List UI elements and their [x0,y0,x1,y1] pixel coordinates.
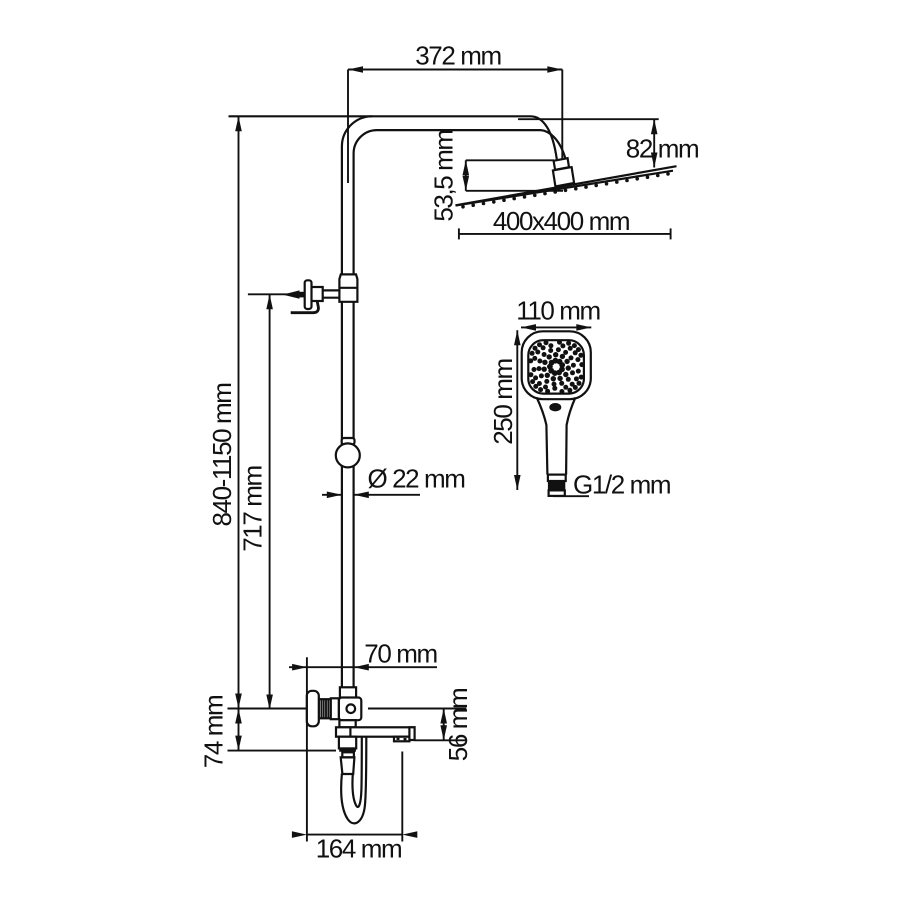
svg-text:250 mm: 250 mm [488,359,518,445]
svg-text:372 mm: 372 mm [415,41,501,71]
svg-text:70 mm: 70 mm [364,639,436,669]
svg-text:400x400 mm: 400x400 mm [493,206,629,236]
svg-text:840-1150 mm: 840-1150 mm [207,383,237,526]
svg-text:56 mm: 56 mm [443,689,473,761]
svg-text:G1/2 mm: G1/2 mm [573,469,670,499]
svg-text:82 mm: 82 mm [626,134,698,164]
svg-text:717 mm: 717 mm [238,466,268,552]
svg-text:110 mm: 110 mm [516,296,600,326]
svg-text:53,5 mm: 53,5 mm [429,130,459,221]
svg-text:Ø 22 mm: Ø 22 mm [367,464,464,494]
svg-text:164 mm: 164 mm [316,834,402,864]
svg-text:74 mm: 74 mm [199,696,229,768]
